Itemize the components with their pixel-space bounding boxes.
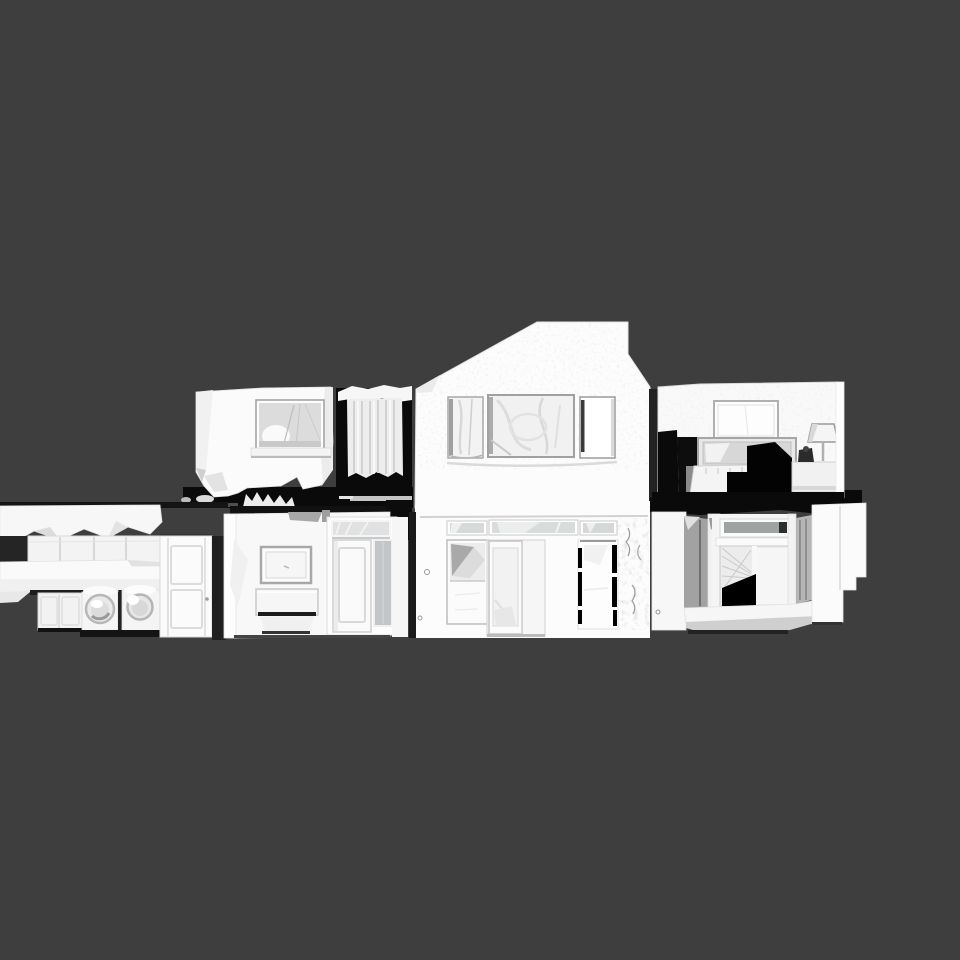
- entry-section: [224, 500, 412, 638]
- entry-door: [327, 517, 397, 635]
- gable-window-right: [580, 397, 615, 458]
- bay-left-panel: [684, 516, 708, 612]
- gable-window-left: [448, 397, 483, 458]
- bay-right-panel: [796, 515, 812, 604]
- house-model-render: [0, 0, 960, 960]
- window-sill: [251, 448, 331, 456]
- vine-texture: [618, 518, 650, 630]
- left-room-window: [256, 400, 324, 450]
- bedroom-section: [649, 382, 844, 508]
- curtain-unit: [336, 385, 412, 496]
- bay-front-window: [712, 514, 796, 614]
- dryer: [122, 585, 160, 632]
- gable-window-center: [488, 395, 574, 457]
- lower-cabinet: [38, 593, 82, 632]
- wall-mirror: [261, 547, 311, 583]
- right-wall-edge: [836, 382, 844, 500]
- door-knob: [205, 597, 209, 601]
- upper-left-room: [196, 387, 333, 497]
- washer: [82, 586, 118, 631]
- entrance-window-right: [578, 540, 618, 629]
- front-entrance: [409, 505, 650, 638]
- laundry-door: [160, 534, 212, 637]
- bay-window-section: [650, 498, 866, 634]
- picture-frame: [714, 401, 778, 440]
- entrance-window-left: [447, 540, 488, 624]
- model-viewport[interactable]: [0, 0, 960, 960]
- console-table: [256, 589, 318, 634]
- ground-floor: [0, 498, 866, 640]
- transom-windows: [447, 520, 617, 535]
- front-double-door: [487, 540, 545, 637]
